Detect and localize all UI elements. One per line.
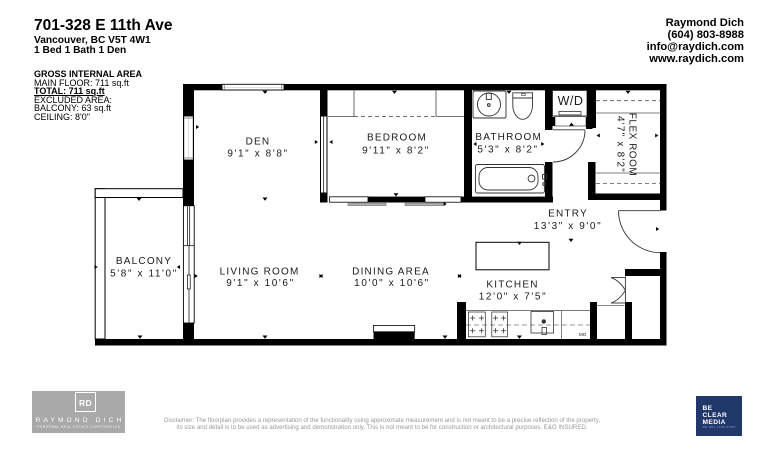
svg-text:ENTRY: ENTRY [548, 209, 588, 220]
svg-text:9'1" x 8'8": 9'1" x 8'8" [227, 149, 288, 160]
svg-text:13'3" x 9'0": 13'3" x 9'0" [534, 221, 602, 232]
svg-text:5'3" x 8'2": 5'3" x 8'2" [477, 145, 538, 156]
svg-text:BALCONY: BALCONY [116, 256, 172, 267]
svg-text:FLEX ROOM: FLEX ROOM [627, 113, 638, 176]
svg-text:BEDROOM: BEDROOM [367, 133, 427, 144]
svg-text:4'7" x 8'2": 4'7" x 8'2" [615, 116, 626, 173]
svg-text:DEN: DEN [246, 137, 271, 148]
svg-text:BATHROOM: BATHROOM [475, 132, 542, 143]
svg-text:DINING AREA: DINING AREA [352, 266, 430, 277]
svg-text:9'11" x 8'2": 9'11" x 8'2" [362, 146, 430, 157]
svg-text:LIVING ROOM: LIVING ROOM [220, 266, 300, 277]
svg-text:5'8" x 11'0": 5'8" x 11'0" [110, 269, 178, 280]
svg-text:KITCHEN: KITCHEN [486, 280, 538, 291]
svg-text:W/D: W/D [558, 94, 584, 108]
svg-text:10'0" x 10'6": 10'0" x 10'6" [354, 278, 430, 289]
svg-text:12'0" x 7'5": 12'0" x 7'5" [479, 292, 547, 303]
svg-text:MO: MO [579, 332, 587, 337]
svg-text:9'1" x 10'6": 9'1" x 10'6" [226, 278, 294, 289]
